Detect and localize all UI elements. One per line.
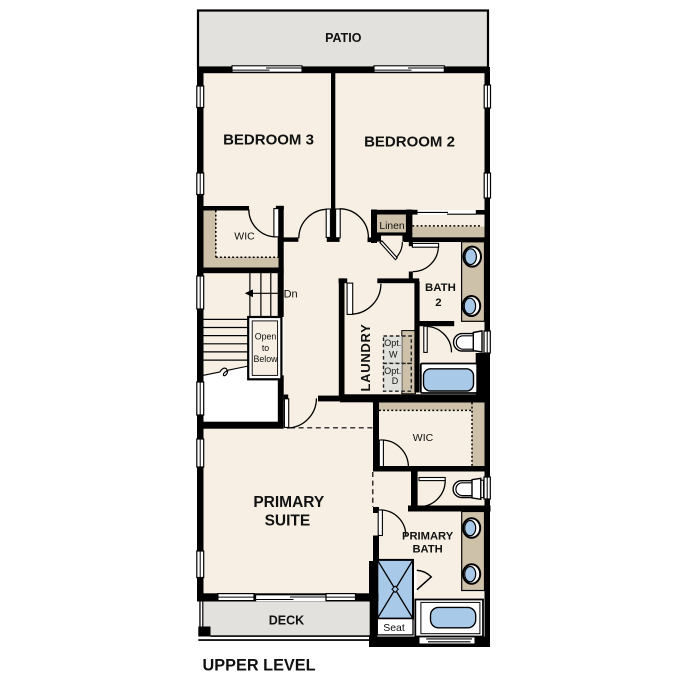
svg-text:W: W: [389, 349, 398, 359]
svg-text:WIC: WIC: [413, 432, 434, 444]
svg-text:BEDROOM 2: BEDROOM 2: [364, 133, 455, 150]
svg-text:PRIMARY: PRIMARY: [402, 531, 454, 543]
svg-text:BATH: BATH: [425, 282, 456, 294]
svg-text:LAUNDRY: LAUNDRY: [358, 324, 373, 392]
svg-text:to: to: [262, 343, 269, 353]
svg-text:BEDROOM 3: BEDROOM 3: [223, 131, 314, 148]
svg-text:Opt.: Opt.: [384, 366, 401, 376]
svg-text:SUITE: SUITE: [265, 513, 311, 530]
svg-text:Dn: Dn: [284, 288, 298, 300]
svg-text:PATIO: PATIO: [325, 31, 362, 45]
svg-text:Opt.: Opt.: [384, 338, 401, 348]
svg-text:2: 2: [435, 297, 441, 309]
svg-text:UPPER LEVEL: UPPER LEVEL: [203, 657, 316, 675]
svg-text:BATH: BATH: [412, 544, 442, 556]
svg-text:Below: Below: [254, 354, 279, 364]
svg-text:Open: Open: [255, 331, 277, 341]
svg-text:Linen: Linen: [379, 221, 404, 232]
svg-text:D: D: [392, 376, 399, 386]
svg-text:PRIMARY: PRIMARY: [253, 494, 325, 511]
svg-text:Seat: Seat: [383, 622, 405, 634]
svg-text:WIC: WIC: [234, 231, 255, 243]
svg-text:DECK: DECK: [269, 613, 304, 627]
